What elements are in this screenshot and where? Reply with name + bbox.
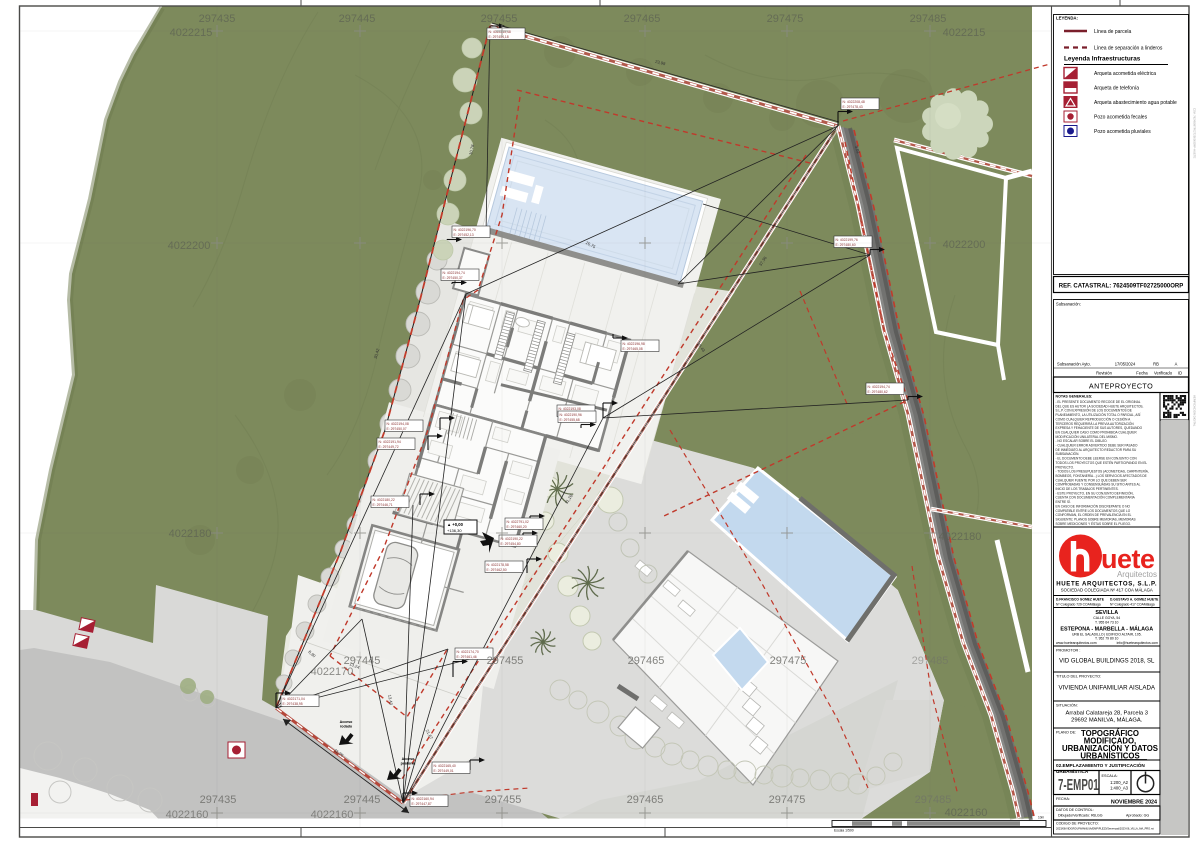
- svg-text:N: 4022215,48: N: 4022215,48: [489, 30, 511, 34]
- svg-text:297435: 297435: [199, 13, 236, 25]
- svg-text:E: 297461,46: E: 297461,46: [457, 655, 477, 659]
- svg-text:TODOS LOS PROYECTOS QUE ESTÉN: TODOS LOS PROYECTOS QUE ESTÉN PARTICIPAN…: [1056, 460, 1148, 465]
- svg-text:FECHA:: FECHA:: [1056, 797, 1070, 801]
- svg-text:- ESTE PROYECTO, EN SU CONJUNT: - ESTE PROYECTO, EN SU CONJUNTO DEFINICI…: [1056, 490, 1134, 495]
- svg-text:E: 297438,95: E: 297438,95: [283, 702, 303, 706]
- svg-text:EN CASO DE INFORMACIÓN DISCREP: EN CASO DE INFORMACIÓN DISCREPANTE O NO: [1056, 503, 1131, 508]
- svg-text:E: 297480,62: E: 297480,62: [868, 390, 888, 394]
- svg-text:PLANO DE:: PLANO DE:: [1056, 731, 1076, 735]
- svg-text:Línea de parcela: Línea de parcela: [1094, 29, 1131, 35]
- svg-text:Verificado: Verificado: [1154, 371, 1173, 376]
- svg-text:N: 4022191,94: N: 4022191,94: [379, 440, 401, 444]
- svg-text:E: 297449,01: E: 297449,01: [434, 769, 454, 773]
- svg-text:Pozo acometida pluviales: Pozo acometida pluviales: [1094, 129, 1151, 135]
- svg-text:N: 4022791,02: N: 4022791,02: [507, 520, 529, 524]
- svg-text:N: 4022190,96: N: 4022190,96: [560, 413, 582, 417]
- svg-text:www.huetearquitectos.com: www.huetearquitectos.com: [1056, 641, 1097, 645]
- svg-text:CUENTA CON DOCUMENTACIÓN COMPL: CUENTA CON DOCUMENTACIÓN COMPLEMENTARIA: [1056, 495, 1136, 500]
- svg-text:297465: 297465: [628, 655, 665, 667]
- svg-text:LEYENDA:: LEYENDA:: [1056, 16, 1079, 21]
- svg-text:TITULO DEL PROYECTO:: TITULO DEL PROYECTO:: [1056, 675, 1101, 679]
- svg-text:T. 952 79 80 10: T. 952 79 80 10: [1095, 637, 1118, 641]
- svg-text:297485: 297485: [912, 655, 949, 667]
- svg-text:17/05/2024: 17/05/2024: [1115, 362, 1136, 367]
- svg-text:REF. CATASTRAL: 7624509TF02725: REF. CATASTRAL: 7624509TF02725000ORP: [1059, 284, 1184, 290]
- svg-text:297445: 297445: [344, 794, 381, 806]
- svg-text:VID GLOBAL BUILDINGS 2018, SL: VID GLOBAL BUILDINGS 2018, SL: [1059, 659, 1155, 665]
- svg-text:info@huetearquitectos.com: info@huetearquitectos.com: [1117, 641, 1159, 645]
- svg-text:▲ +0,00: ▲ +0,00: [447, 522, 464, 527]
- svg-text:Fecha: Fecha: [1136, 371, 1148, 376]
- svg-text:N: 4022171,04: N: 4022171,04: [283, 697, 305, 701]
- svg-text:Arqueta acometida eléctrica: Arqueta acometida eléctrica: [1094, 71, 1156, 77]
- svg-text:ID: ID: [1178, 371, 1182, 376]
- svg-text:NOTAS GENERALES:: NOTAS GENERALES:: [1056, 395, 1093, 399]
- svg-text:S.L.P. CON EXPRESIÓN DE LOS DO: S.L.P. CON EXPRESIÓN DE LOS DOCUMENTOS D…: [1056, 408, 1132, 413]
- svg-text:297475: 297475: [769, 794, 806, 806]
- svg-text:4022160: 4022160: [166, 809, 209, 821]
- svg-text:+136,30: +136,30: [447, 528, 462, 533]
- svg-text:4022215: 4022215: [943, 27, 986, 39]
- svg-text:297465: 297465: [627, 794, 664, 806]
- svg-text:N: 4022180,22: N: 4022180,22: [373, 498, 395, 502]
- svg-text:VIVIENDA UNIFAMILIAR AISLADA: VIVIENDA UNIFAMILIAR AISLADA: [1058, 685, 1155, 692]
- svg-text:Nº Colegiado 729 COAMálaga: Nº Colegiado 729 COAMálaga: [1056, 603, 1101, 607]
- svg-text:4022200: 4022200: [168, 240, 211, 252]
- svg-text:URBANÍSTICOS: URBANÍSTICOS: [1080, 751, 1139, 760]
- svg-text:ANTEPROYECTO: ANTEPROYECTO: [1089, 382, 1153, 391]
- svg-text:1:400_A3: 1:400_A3: [1110, 786, 1129, 791]
- svg-text:E: 297460,20: E: 297460,20: [507, 525, 527, 529]
- svg-text:E: 297480,60: E: 297480,60: [836, 243, 856, 247]
- svg-text:4022160: 4022160: [945, 807, 988, 819]
- svg-text:4022180: 4022180: [939, 531, 982, 543]
- svg-text:Leyenda Infraestructuras: Leyenda Infraestructuras: [1064, 56, 1141, 63]
- svg-text:4022180: 4022180: [169, 528, 212, 540]
- svg-text:N: 4022193,08: N: 4022193,08: [559, 407, 581, 411]
- svg-text:4022170: 4022170: [311, 666, 354, 678]
- svg-text:D.FRANCISCO GOMEZ HUETE: D.FRANCISCO GOMEZ HUETE: [1056, 598, 1105, 602]
- svg-text:N: 4022208,48: N: 4022208,48: [843, 100, 865, 104]
- svg-text:Dibujado/Verificado: RB,G: Dibujado/Verificado: RB,GG: [1058, 814, 1103, 818]
- svg-text:297465: 297465: [624, 13, 661, 25]
- svg-text:297455: 297455: [487, 655, 524, 667]
- svg-text:D.GUSTAVO A. GOMEZ HUETE: D.GUSTAVO A. GOMEZ HUETE: [1110, 598, 1159, 602]
- svg-text:4022160: 4022160: [311, 809, 354, 821]
- svg-text:DATOS DE CONTROL:: DATOS DE CONTROL:: [1056, 808, 1094, 812]
- svg-text:Subsanación Ayto.: Subsanación Ayto.: [1057, 362, 1091, 367]
- svg-text:MODIFICACIÓN UNILATERAL DEL MI: MODIFICACIÓN UNILATERAL DEL MISMO.: [1056, 434, 1118, 439]
- svg-text:Nº Colegiado 417 COAMálaga: Nº Colegiado 417 COAMálaga: [1110, 603, 1155, 607]
- svg-text:N: 4022178,58: N: 4022178,58: [487, 563, 509, 567]
- svg-text:NOVIEMBRE 2024: NOVIEMBRE 2024: [1111, 800, 1157, 806]
- svg-text:N: 4022196,70: N: 4022196,70: [454, 228, 476, 232]
- svg-text:Arrabal Calatareja 28, Parcela: Arrabal Calatareja 28, Parcela 3: [1066, 711, 1149, 717]
- svg-text:Línea de separación a linderos: Línea de separación a linderos: [1094, 46, 1163, 52]
- svg-text:ESTEPONA - MARBELLA - MÁLA: ESTEPONA - MARBELLA - MÁLAGA: [1060, 626, 1153, 633]
- svg-text:2023/06/VIDGROUP/MANILVA/EMP/P: 2023/06/VIDGROUP/MANILVA/EMP/PLE23/Serve…: [1056, 827, 1154, 831]
- svg-text:PLANEAMIENTO, LA UTILIZACIÓN T: PLANEAMIENTO, LA UTILIZACIÓN TOTAL O PAR…: [1056, 412, 1141, 417]
- svg-text:E: 297455,68: E: 297455,68: [560, 418, 580, 422]
- svg-text:Arquitectos: Arquitectos: [1117, 570, 1157, 579]
- svg-text:HUETE ARQUITECTOS, S.L.P.: HUETE ARQUITECTOS, S.L.P.: [1056, 581, 1157, 588]
- svg-text:297475: 297475: [770, 655, 807, 667]
- svg-text:02.EMPLAZAMIENTO Y JUSTIFICACI: 02.EMPLAZAMIENTO Y JUSTIFICACIÓN: [1056, 761, 1145, 768]
- svg-text:E: 297446,71: E: 297446,71: [373, 503, 393, 507]
- svg-text:297455: 297455: [485, 794, 522, 806]
- svg-text:297475: 297475: [767, 13, 804, 25]
- svg-text:SOCIEDAD COLEGIADA Nº 417 COA: SOCIEDAD COLEGIADA Nº 417 COA MÁLAGA: [1061, 588, 1153, 593]
- svg-text:RB: RB: [1153, 362, 1159, 367]
- svg-text:PROMOTOR :: PROMOTOR :: [1056, 649, 1080, 653]
- svg-text:COMO CUALQUIER REPRODUCCIÓN O: COMO CUALQUIER REPRODUCCIÓN O CESIÓN A: [1056, 416, 1132, 421]
- svg-text:Pozo acometida fecales: Pozo acometida fecales: [1094, 115, 1148, 121]
- svg-text:rodado: rodado: [340, 725, 353, 729]
- svg-text:T. 955 64 73 10: T. 955 64 73 10: [1095, 620, 1118, 624]
- svg-text:7-EMP01: 7-EMP01: [1058, 776, 1099, 794]
- svg-text:N: 4022194,74: N: 4022194,74: [868, 385, 890, 389]
- svg-text:N: 4022199,76: N: 4022199,76: [836, 238, 858, 242]
- svg-text:CODIGO DE PROYECTO:: CODIGO DE PROYECTO:: [1056, 822, 1099, 826]
- svg-text:N: 4022165,40: N: 4022165,40: [434, 764, 456, 768]
- svg-text:Escala 1/500: Escala 1/500: [834, 829, 854, 833]
- svg-text:E: 297454,80: E: 297454,80: [501, 542, 521, 546]
- svg-text:Aprobado: GG: Aprobado: GG: [1126, 814, 1149, 818]
- svg-text:E: 297447,87: E: 297447,87: [412, 802, 432, 806]
- svg-text:peatonal: peatonal: [401, 762, 416, 766]
- svg-text:E: 297452,13: E: 297452,13: [454, 233, 474, 237]
- svg-text:297445: 297445: [339, 13, 376, 25]
- svg-text:N: 4022194,08: N: 4022194,08: [387, 422, 409, 426]
- svg-text:Arqueta de telefonía: Arqueta de telefonía: [1094, 86, 1139, 92]
- svg-text:Acceso: Acceso: [340, 720, 354, 724]
- svg-text:CSV: 7624509TF02725000ORP-HUET: CSV: 7624509TF02725000ORP-HUETE: [1193, 108, 1197, 159]
- svg-text:Acceso: Acceso: [402, 757, 416, 761]
- svg-text:ESCALA:: ESCALA:: [1102, 774, 1118, 778]
- svg-text:N: 4022190,22: N: 4022190,22: [501, 537, 523, 541]
- svg-text:297435: 297435: [200, 794, 237, 806]
- svg-text:10m: 10m: [1038, 816, 1045, 820]
- svg-text:297485: 297485: [910, 13, 947, 25]
- svg-text:E: 297462,50: E: 297462,50: [487, 568, 507, 572]
- svg-text:1:200_A2: 1:200_A2: [1110, 780, 1129, 785]
- svg-text:4022200: 4022200: [943, 239, 986, 251]
- svg-text:E: 297465,08: E: 297465,08: [623, 347, 643, 351]
- svg-text:E: 297449,72: E: 297449,72: [379, 445, 399, 449]
- svg-text:297455: 297455: [481, 13, 518, 25]
- svg-text:VERIFICACION DIGITAL: VERIFICACION DIGITAL: [1193, 395, 1197, 427]
- svg-text:N: 4022160,94: N: 4022160,94: [412, 797, 434, 801]
- svg-text:29692 MANILVA, MÁLAGA.: 29692 MANILVA, MÁLAGA.: [1071, 717, 1143, 724]
- svg-text:E: 297478,43: E: 297478,43: [843, 105, 863, 109]
- svg-text:A: A: [1175, 362, 1178, 367]
- svg-text:TERCEROS REQUERIRÁ LA PREVIA A: TERCEROS REQUERIRÁ LA PREVIA AUTORIZACIÓ…: [1056, 421, 1135, 426]
- svg-text:297485: 297485: [915, 794, 952, 806]
- svg-text:N: 4022194,74: N: 4022194,74: [443, 271, 465, 275]
- svg-text:SOBRE MEDICIONES Y ÉSTAS SOBRE: SOBRE MEDICIONES Y ÉSTAS SOBRE EL PLIEGO…: [1056, 521, 1132, 526]
- svg-text:4022215: 4022215: [170, 27, 213, 39]
- svg-text:SUBSANACIÓN.: SUBSANACIÓN.: [1056, 451, 1080, 456]
- svg-text:Arqueta abastecimiento agua po: Arqueta abastecimiento agua potable: [1094, 100, 1177, 106]
- svg-text:Subsanación:: Subsanación:: [1056, 302, 1081, 307]
- svg-text:E: 297450,37: E: 297450,37: [443, 276, 463, 280]
- svg-text:E: 297450,07: E: 297450,07: [387, 427, 407, 431]
- svg-text:Revisión: Revisión: [1096, 371, 1112, 376]
- svg-text:N: 4022196,98: N: 4022196,98: [623, 342, 645, 346]
- svg-text:E: 297454,18: E: 297454,18: [489, 35, 509, 39]
- svg-text:SITUACIÓN:: SITUACIÓN:: [1056, 703, 1078, 708]
- svg-text:N: 4022174,70: N: 4022174,70: [457, 650, 479, 654]
